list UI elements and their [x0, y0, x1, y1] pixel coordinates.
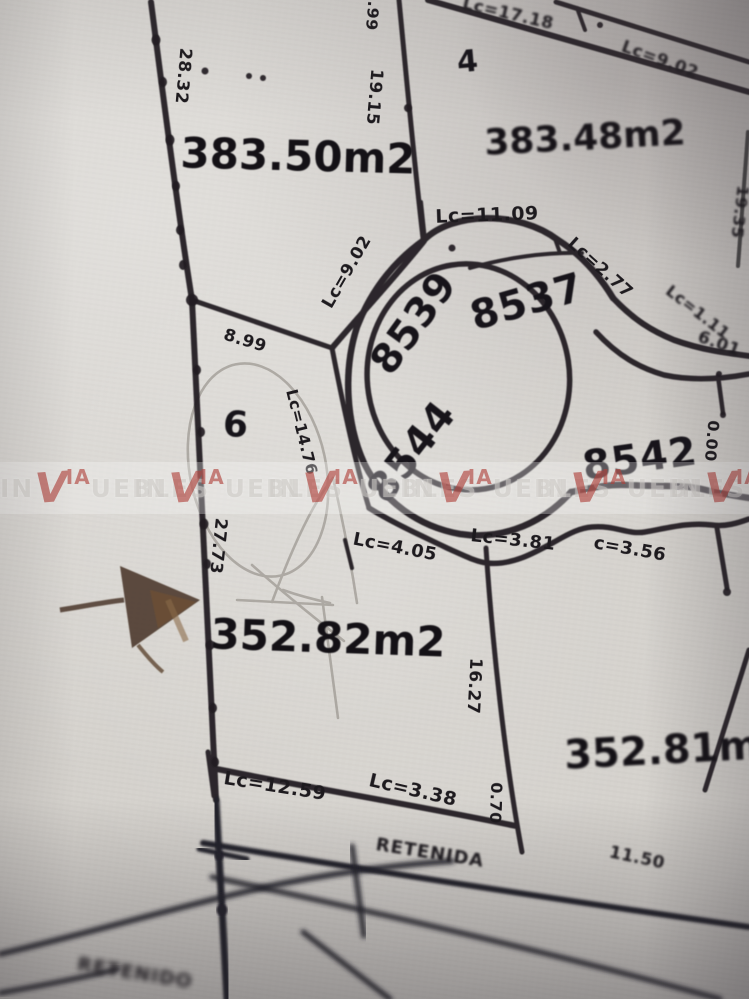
label-length-16-27: 16.27 — [463, 657, 486, 714]
area-352-82: 352.82m2 — [210, 609, 447, 666]
street-line-2 — [212, 877, 720, 999]
lot-number-6: 6 — [222, 404, 251, 447]
hand-drawn-arrow — [60, 566, 200, 672]
lot-number-4: 4 — [456, 44, 481, 81]
label-length-1-99: 1.99 — [362, 0, 385, 31]
area-383-50: 383.50m2 — [180, 128, 416, 183]
label-length-0-70: 0.70 — [486, 782, 506, 824]
label-lc-11-09: Lc=11.09 — [435, 202, 539, 228]
label-length-0-00: 0.00 — [701, 420, 724, 463]
plat-map-photo: 28.32 1.99 19.15 Lc=17.18 4 Lc=9.02 383.… — [0, 0, 749, 999]
